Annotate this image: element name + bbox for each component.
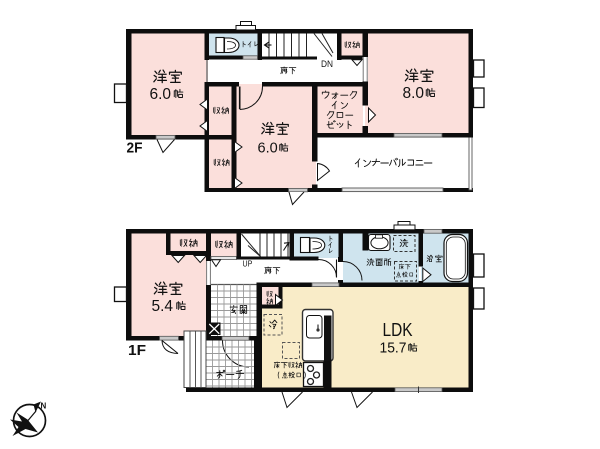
svg-text:1F: 1F	[128, 342, 146, 359]
svg-text:6.0: 6.0	[258, 141, 278, 157]
svg-text:DN: DN	[321, 59, 333, 70]
svg-text:LDK: LDK	[383, 320, 413, 340]
svg-text:5.4: 5.4	[152, 298, 174, 315]
svg-text:6.0: 6.0	[150, 86, 172, 103]
svg-text:N: N	[41, 402, 47, 411]
svg-text:8.0: 8.0	[403, 85, 425, 102]
svg-text:15.7: 15.7	[380, 340, 407, 357]
svg-text:UP: UP	[243, 259, 253, 269]
svg-text:2F: 2F	[127, 140, 143, 156]
